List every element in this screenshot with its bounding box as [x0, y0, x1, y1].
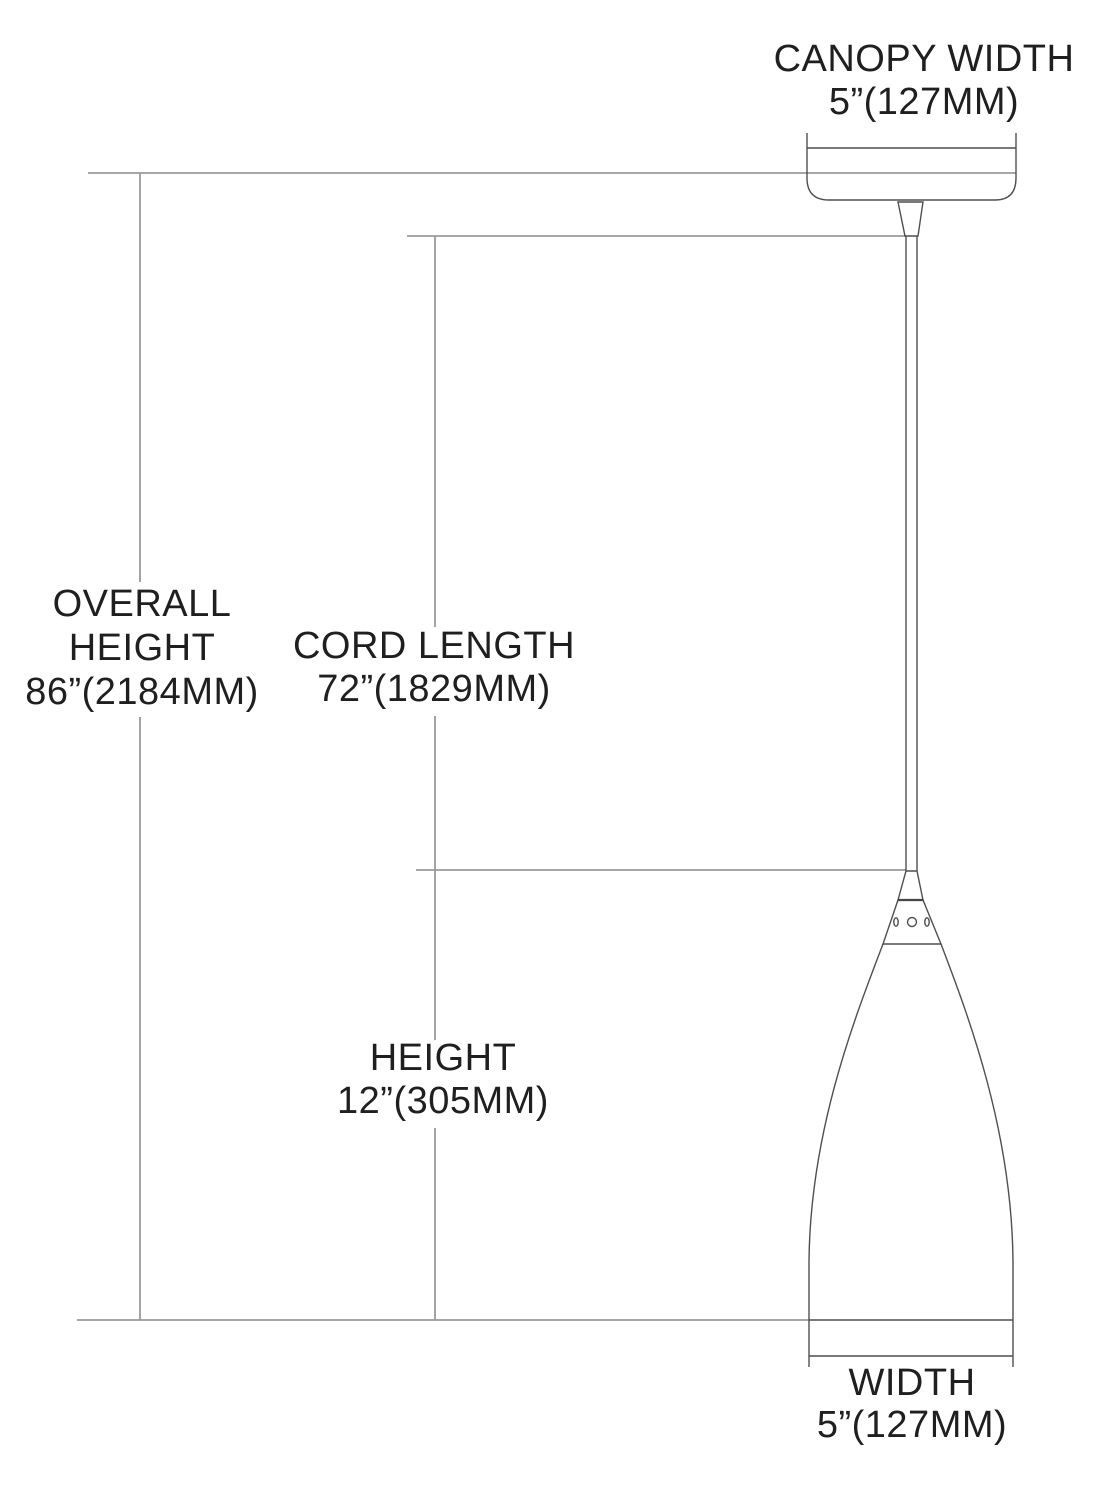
canopy-stem — [898, 202, 923, 236]
shade-vent-hole-center — [908, 918, 917, 927]
canopy-width-value: 5”(127MM) — [724, 81, 1099, 124]
shade-height-value: 12”(305MM) — [243, 1080, 643, 1123]
dimension-lines — [77, 173, 1016, 1320]
shade-width-value: 5”(127MM) — [712, 1404, 1099, 1446]
canopy-drawing — [807, 133, 1016, 236]
shade-drawing — [809, 871, 1013, 1367]
overall-height-title-line1: OVERALL — [0, 582, 342, 626]
shade-vent-hole-right — [925, 918, 929, 926]
shade-neck — [883, 900, 941, 944]
shade-width-title: WIDTH — [712, 1362, 1099, 1404]
shade-bell-left-edge — [809, 944, 883, 1320]
cord-length-value: 72”(1829MM) — [234, 668, 634, 711]
cord-length-label: CORD LENGTH 72”(1829MM) — [234, 625, 634, 711]
canopy-width-title: CANOPY WIDTH — [724, 38, 1099, 81]
pendant-dimension-diagram: CANOPY WIDTH 5”(127MM) OVERALL HEIGHT 86… — [0, 0, 1099, 1500]
cord-drawing — [906, 236, 917, 871]
shade-vent-hole-left — [894, 918, 898, 926]
shade-bell-right-edge — [941, 944, 1013, 1320]
shade-socket-cone — [898, 871, 923, 900]
cord-length-title: CORD LENGTH — [234, 625, 634, 668]
diagram-linework — [0, 0, 1099, 1500]
shade-width-label: WIDTH 5”(127MM) — [712, 1362, 1099, 1446]
canopy-body-outline — [807, 148, 1016, 200]
shade-height-title: HEIGHT — [243, 1037, 643, 1080]
shade-height-label: HEIGHT 12”(305MM) — [243, 1037, 643, 1123]
canopy-width-label: CANOPY WIDTH 5”(127MM) — [724, 38, 1099, 124]
